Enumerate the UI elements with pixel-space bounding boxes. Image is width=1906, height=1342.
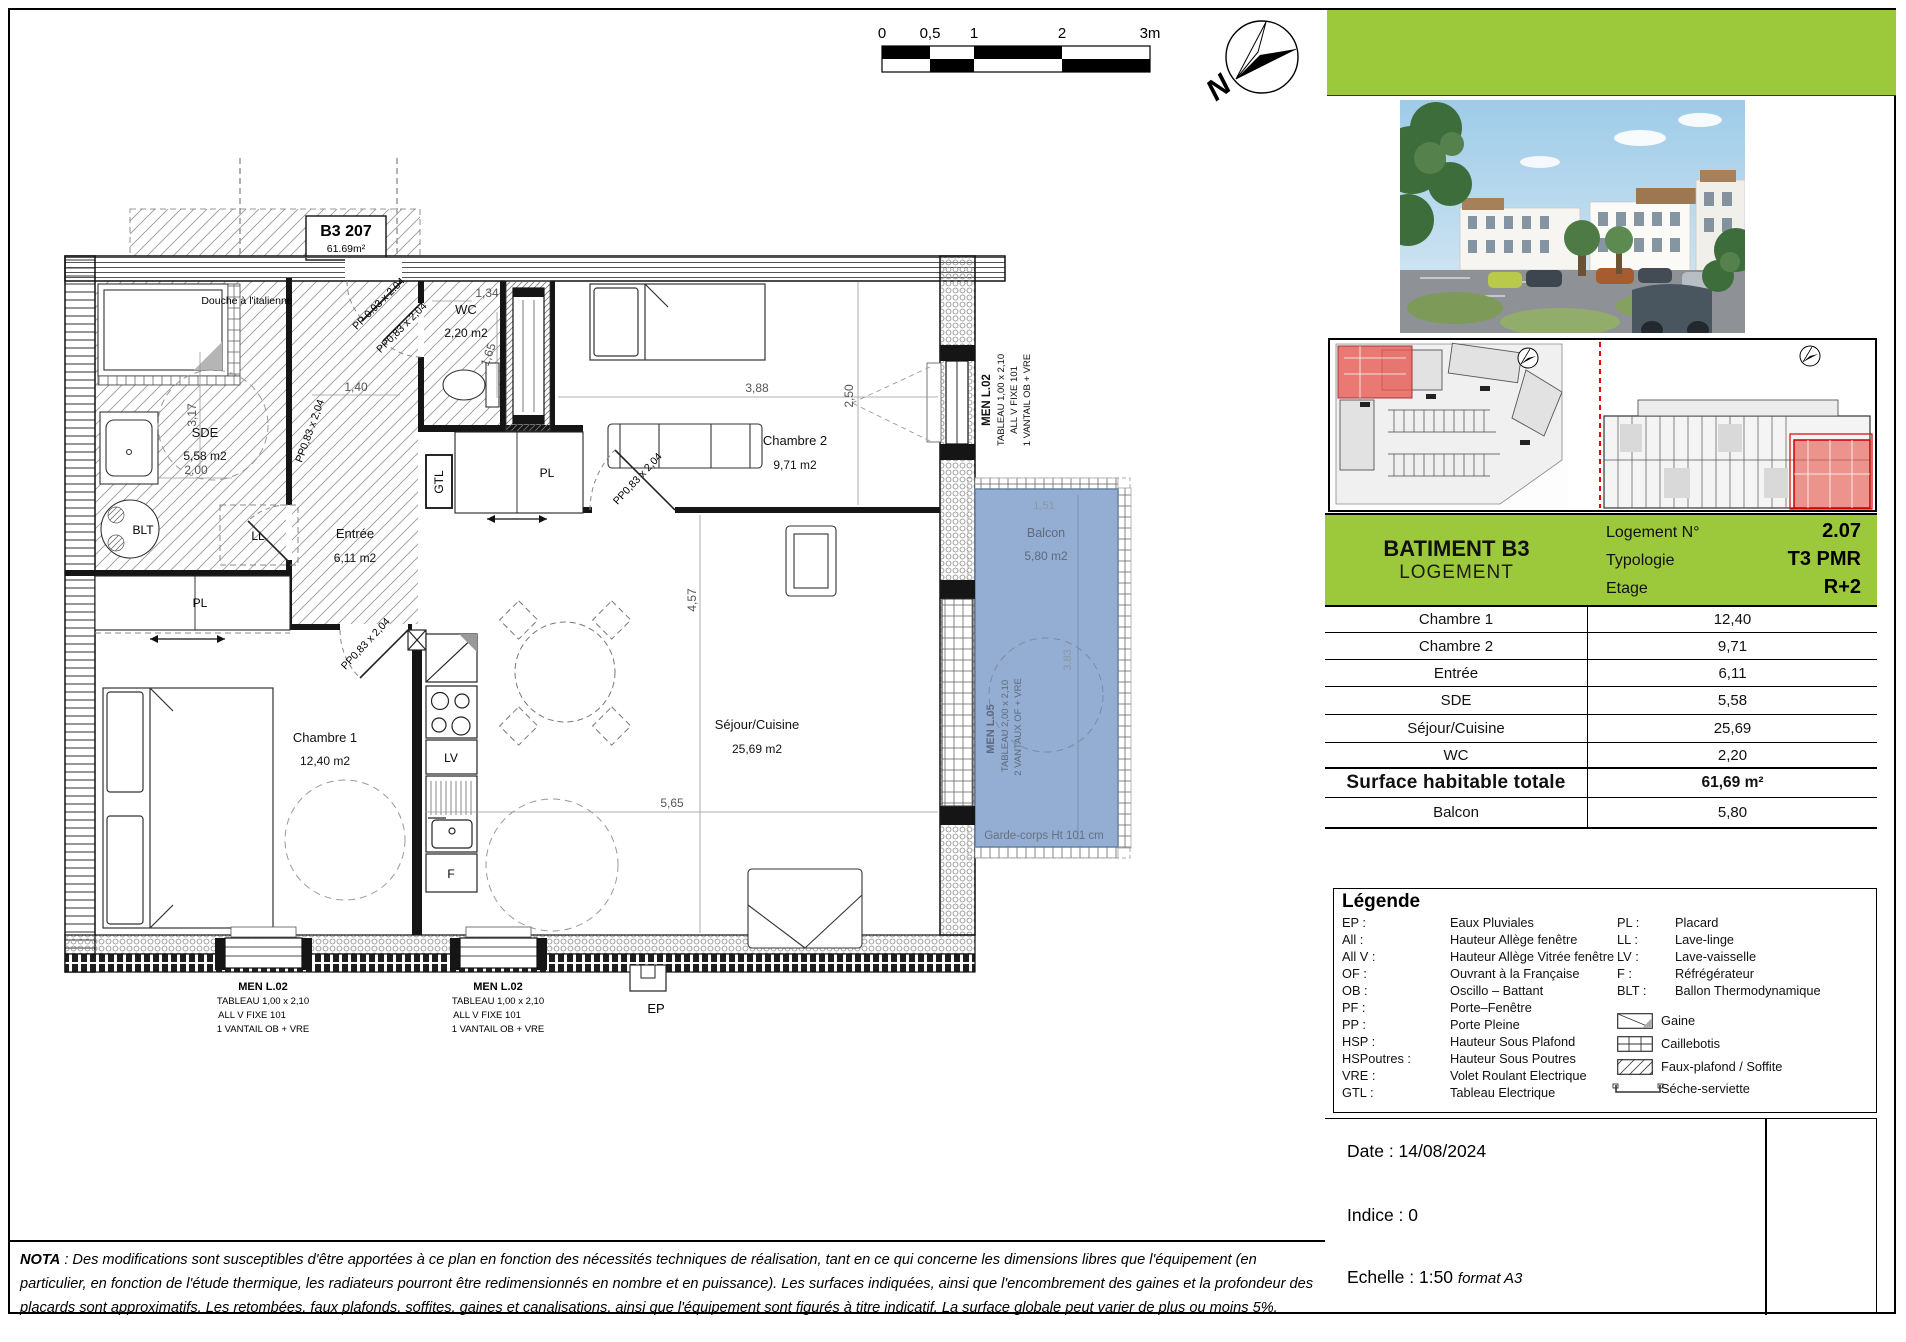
- svg-text:ALL V FIXE 101: ALL V FIXE 101: [1009, 366, 1020, 434]
- nota-label: NOTA: [20, 1252, 60, 1268]
- room-label-sejour: Séjour/Cuisine: [715, 717, 800, 732]
- dim-565: 5,65: [660, 796, 684, 810]
- faux-plafond-icon: [1617, 1059, 1653, 1075]
- room-area-balcon: 5,80 m2: [1024, 549, 1068, 563]
- scale-bar: 0 0,5 1 2 3m: [878, 25, 1161, 72]
- header-band: [1327, 10, 1896, 96]
- dim-250: 2,50: [842, 384, 856, 408]
- closet-chambre1: PL: [95, 576, 290, 643]
- window-right-labels: MEN L.02 TABLEAU 1,00 x 2,10 ALL V FIXE …: [981, 354, 1033, 446]
- svg-text:MEN L.02: MEN L.02: [473, 981, 523, 993]
- dim-200: 2,00: [184, 463, 208, 477]
- label-gtl: GTL: [432, 470, 446, 494]
- svg-text:MEN L.02: MEN L.02: [238, 981, 288, 993]
- svg-text:ALL V FIXE 101: ALL V FIXE 101: [218, 1010, 286, 1021]
- table-row: Séjour/Cuisine25,69: [1325, 715, 1877, 743]
- nota-text: : Des modifications sont susceptibles d'…: [20, 1252, 1313, 1316]
- label-ep: EP: [647, 1001, 664, 1016]
- table-row: SDE5,58: [1325, 687, 1877, 715]
- svg-text:TABLEAU 1,00 x 2,10: TABLEAU 1,00 x 2,10: [452, 996, 544, 1007]
- closet-entree: PL: [455, 432, 583, 523]
- siteplan-thumbnail: [1328, 338, 1570, 512]
- svg-text:1 VANTAIL OB + VRE: 1 VANTAIL OB + VRE: [452, 1024, 544, 1035]
- room-label-sde: SDE: [192, 425, 219, 440]
- armchair: [786, 526, 836, 596]
- table-row: WC2,20: [1325, 743, 1877, 768]
- unit-code: B3 207: [320, 223, 372, 240]
- room-label-balcon: Balcon: [1027, 526, 1065, 540]
- siteplan-highlight: [1338, 346, 1412, 398]
- svg-text:1 VANTAIL OB + VRE: 1 VANTAIL OB + VRE: [217, 1024, 309, 1035]
- table-row: Entrée6,11: [1325, 660, 1877, 687]
- svg-text:2: 2: [1058, 25, 1066, 42]
- window-right: [852, 345, 975, 460]
- dim-317: 3,17: [185, 403, 199, 427]
- dim-457: 4,57: [685, 588, 699, 612]
- photo-render: [1400, 100, 1745, 333]
- dim-388: 3,88: [745, 381, 769, 395]
- room-label-chambre1: Chambre 1: [293, 730, 357, 745]
- dim-383: 3,83: [1062, 649, 1074, 670]
- nota-note: NOTA : Des modifications sont susceptibl…: [8, 1240, 1325, 1314]
- room-label-wc: WC: [455, 302, 477, 317]
- dim-140: 1,40: [344, 380, 368, 394]
- floor-thumbnail: [1568, 338, 1877, 512]
- room-label-chambre2: Chambre 2: [763, 433, 827, 448]
- unit-area: 61.69m²: [327, 243, 366, 255]
- dim-151: 1,51: [1033, 500, 1054, 512]
- building-subtitle: LOGEMENT: [1399, 562, 1514, 584]
- svg-text:0,5: 0,5: [920, 25, 941, 42]
- window-bottom-1: [215, 927, 312, 970]
- info-row-etage: Etage R+2: [1606, 574, 1861, 602]
- caillebotis-icon: [1617, 1036, 1653, 1052]
- washbasin: [100, 412, 158, 484]
- echelle-line: Echelle : 1:50 format A3: [1347, 1267, 1522, 1288]
- north-label: N: [1200, 67, 1238, 107]
- label-pl-entree: PL: [540, 466, 555, 480]
- label-blt: BLT: [132, 523, 154, 537]
- echelle-format: format A3: [1458, 1270, 1522, 1287]
- svg-text:MEN L.05: MEN L.05: [985, 704, 997, 754]
- svg-text:0: 0: [878, 25, 886, 42]
- blt-boiler: BLT: [101, 500, 159, 558]
- plan-sheet: 0 0,5 1 2 3m N B3 207 61.69m²: [0, 0, 1906, 1342]
- dim-134: 1,34: [475, 286, 499, 300]
- unit-info-box: BATIMENT B3 LOGEMENT Logement N° 2.07 Ty…: [1325, 513, 1877, 607]
- building-title: BATIMENT B3: [1383, 536, 1529, 562]
- table-row: Balcon5,80: [1325, 798, 1877, 827]
- svg-text:MEN L.02: MEN L.02: [981, 374, 993, 426]
- label-f: F: [447, 867, 454, 881]
- svg-text:ALL V FIXE 101: ALL V FIXE 101: [453, 1010, 521, 1021]
- unit-tag: B3 207 61.69m²: [306, 216, 386, 260]
- window-bottom-1-labels: MEN L.02 TABLEAU 1,00 x 2,10 ALL V FIXE …: [217, 981, 309, 1035]
- svg-text:TABLEAU 2,00 x 2,10: TABLEAU 2,00 x 2,10: [1000, 680, 1011, 772]
- info-row-typologie: Typologie T3 PMR: [1606, 546, 1861, 574]
- duct-shaft: [506, 281, 550, 431]
- dining-table: [500, 601, 631, 745]
- room-area-sde: 5,58 m2: [183, 449, 227, 463]
- svg-text:TABLEAU 1,00 x 2,10: TABLEAU 1,00 x 2,10: [217, 996, 309, 1007]
- table-row: Chambre 29,71: [1325, 633, 1877, 660]
- indice-line: Indice : 0: [1347, 1205, 1418, 1226]
- svg-text:TABLEAU 1,00 x 2,10: TABLEAU 1,00 x 2,10: [996, 354, 1007, 446]
- svg-text:1: 1: [970, 25, 978, 42]
- room-area-sejour: 25,69 m2: [732, 742, 782, 756]
- floorplan-drawing: 0 0,5 1 2 3m N B3 207 61.69m²: [0, 0, 1325, 1240]
- room-area-chambre2: 9,71 m2: [773, 458, 817, 472]
- sofa-bottom: [748, 869, 862, 948]
- room-area-entree: 6,11 m2: [334, 551, 377, 565]
- cartouche-divider: [1765, 1119, 1767, 1315]
- surfaces-table: Chambre 112,40 Chambre 29,71 Entrée6,11 …: [1325, 607, 1877, 829]
- info-row-logement: Logement N° 2.07: [1606, 518, 1861, 546]
- svg-text:1 VANTAIL OB + VRE: 1 VANTAIL OB + VRE: [1022, 354, 1033, 446]
- label-lv: LV: [444, 751, 458, 765]
- room-area-chambre1: 12,40 m2: [300, 754, 350, 768]
- window-bottom-2: [450, 927, 547, 970]
- cartouche: Date : 14/08/2024 Indice : 0 Echelle : 1…: [1325, 1118, 1877, 1314]
- svg-text:3m: 3m: [1140, 25, 1161, 42]
- date-line: Date : 14/08/2024: [1347, 1141, 1486, 1162]
- legend: Légende EP :Eaux Pluviales All :Hauteur …: [1333, 888, 1877, 1113]
- table-row-total: Surface habitable totale61,69 m²: [1325, 768, 1877, 798]
- gtl-panel: GTL: [426, 455, 452, 508]
- mini-compass-right-icon: [1800, 346, 1820, 366]
- north-compass-icon: N: [1200, 21, 1298, 108]
- legend-title: Légende: [1342, 891, 1420, 913]
- table-row: Chambre 112,40: [1325, 607, 1877, 633]
- ep-downpipe: EP: [630, 965, 666, 1016]
- seche-serviette-icon: [1612, 1083, 1664, 1096]
- room-area-wc: 2,20 m2: [444, 326, 488, 340]
- bed-chambre1: [103, 688, 273, 928]
- bed-chambre2: [590, 284, 765, 360]
- mini-compass-left-icon: [1518, 348, 1538, 368]
- door-label-chambre1: PP0,83 x 2,04: [339, 616, 393, 673]
- gaine-icon: [1617, 1013, 1653, 1029]
- window-bottom-2-labels: MEN L.02 TABLEAU 1,00 x 2,10 ALL V FIXE …: [452, 981, 544, 1035]
- sofa-top: [608, 424, 762, 468]
- garde-corps-label: Garde-corps Ht 101 cm: [984, 830, 1104, 842]
- svg-text:2 VANTAUX OF + VRE: 2 VANTAUX OF + VRE: [1013, 678, 1024, 776]
- room-label-entree: Entrée: [336, 526, 374, 541]
- label-pl-chambre1: PL: [193, 596, 208, 610]
- label-douche: Douche à l'italienne: [201, 295, 292, 307]
